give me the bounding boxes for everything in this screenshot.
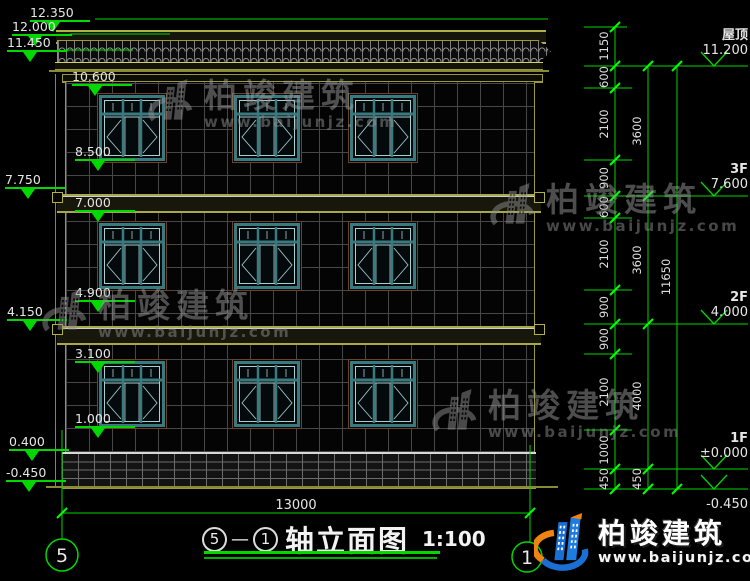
- elevation-triangle-icon: [88, 86, 102, 96]
- elevation-marker: 10.600: [72, 70, 132, 96]
- dim-segment: 900: [597, 328, 611, 350]
- caption-axis-end: 1: [253, 527, 278, 552]
- brand-logo-icon: [488, 180, 538, 236]
- elevation-triangle-icon: [91, 428, 105, 438]
- elevation-triangle-icon: [22, 482, 36, 492]
- marker-line: [9, 449, 69, 451]
- dim-segment: 2100: [597, 239, 611, 268]
- dim-floor-height: 450: [630, 468, 644, 490]
- marker-line: [5, 187, 65, 189]
- footer-brand-logo: 柏竣建筑 www.baijunjz.com: [534, 512, 750, 572]
- dim-segment: 600: [597, 66, 611, 88]
- marker-line: [75, 361, 135, 363]
- elevation-triangle-icon: [21, 189, 35, 199]
- cad-elevation-drawing: 12.350 12.000 11.450 10.600 8.500 7.750 …: [0, 0, 750, 581]
- axis-bubble-5: 5: [52, 545, 72, 567]
- caption-scale: 1:100: [422, 527, 486, 551]
- elevation-marker: 8.500: [75, 145, 135, 171]
- brand-logo-icon: [534, 512, 592, 572]
- marker-line: [72, 84, 132, 86]
- level-label-2f: 2F 4.000: [662, 290, 748, 320]
- level-label-basement: -0.450: [662, 497, 748, 512]
- dim-floor-height: 3600: [630, 116, 644, 145]
- watermark: 柏竣建筑 www.baijunjz.com: [430, 386, 681, 442]
- marker-line: [75, 426, 135, 428]
- dim-segment: 2100: [597, 109, 611, 138]
- dim-floor-height: 3600: [630, 245, 644, 274]
- brand-logo-icon: [146, 76, 196, 132]
- elevation-marker: 0.400: [9, 435, 69, 461]
- elevation-triangle-icon: [91, 363, 105, 373]
- brand-logo-icon: [40, 286, 90, 342]
- marker-line: [6, 480, 66, 482]
- watermark: 柏竣建筑 www.baijunjz.com: [40, 286, 291, 342]
- elevation-marker: 7.750: [5, 173, 65, 199]
- dim-segment: 900: [597, 296, 611, 318]
- marker-line: [7, 50, 67, 52]
- elevation-marker: 1.000: [75, 412, 135, 438]
- caption-axis-start: 5: [202, 527, 227, 552]
- elevation-triangle-icon: [23, 321, 37, 331]
- watermark: 柏竣建筑 www.baijunjz.com: [146, 76, 397, 132]
- level-label-roof: 屋顶 11.200: [662, 28, 748, 58]
- caption-dash: —: [231, 529, 249, 550]
- elevation-triangle-icon: [91, 161, 105, 171]
- dim-segment: 1150: [597, 31, 611, 60]
- elevation-marker: 11.450: [7, 36, 67, 62]
- brand-logo-icon: [430, 386, 480, 442]
- elevation-triangle-icon: [23, 52, 37, 62]
- elevation-triangle-icon: [25, 451, 39, 461]
- caption-underline: [204, 551, 440, 554]
- caption-underline: [204, 557, 437, 559]
- elevation-triangle-icon: [91, 212, 105, 222]
- marker-line: [75, 159, 135, 161]
- elevation-marker: 7.000: [75, 196, 135, 222]
- elevation-marker: 3.100: [75, 347, 135, 373]
- width-dimension: 13000: [62, 498, 530, 513]
- dim-segment: 450: [597, 468, 611, 490]
- marker-line: [75, 210, 135, 212]
- elevation-marker: -0.450: [6, 466, 66, 492]
- watermark: 柏竣建筑 www.baijunjz.com: [488, 180, 739, 236]
